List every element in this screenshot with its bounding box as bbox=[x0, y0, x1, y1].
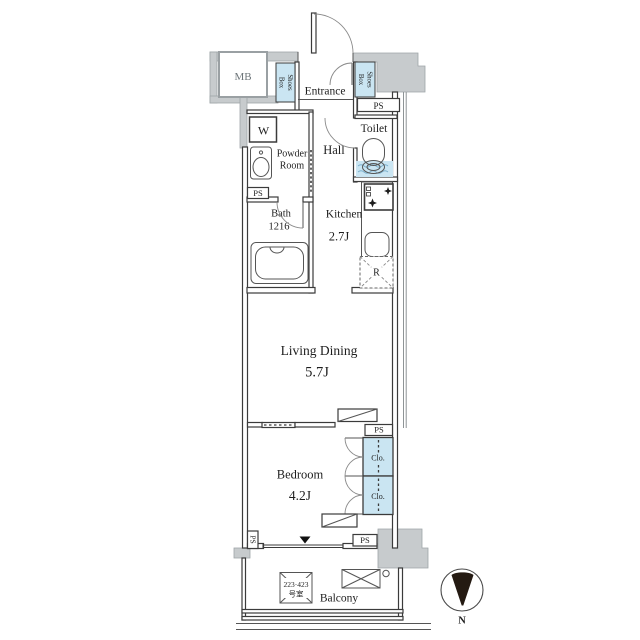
front-door-swing-arc bbox=[314, 14, 353, 53]
bedroom: Bedroom 4.2J Clo. Clo. PS PS bbox=[248, 438, 394, 549]
closet-door-arc1 bbox=[345, 438, 363, 457]
entrance-left-wall bbox=[295, 62, 299, 112]
kitchen-size-label: 2.7J bbox=[329, 230, 350, 244]
bath-size-label: 1216 bbox=[269, 222, 290, 233]
toilet-bottom-wall bbox=[354, 177, 398, 182]
hall: Hall bbox=[323, 118, 355, 157]
compass: N bbox=[441, 569, 483, 627]
washer-label: W bbox=[258, 124, 270, 138]
svg-text:Box: Box bbox=[278, 77, 285, 89]
toilet-label: Toilet bbox=[361, 123, 388, 135]
refrigerator-space: R bbox=[360, 257, 393, 289]
bathtub-inner bbox=[256, 247, 304, 279]
kitchen-label: Kitchen bbox=[326, 209, 363, 221]
unit-left-wall-top bbox=[240, 96, 247, 148]
kitchen: Kitchen 2.7J R bbox=[326, 182, 393, 288]
hall-door-swing-arc bbox=[330, 63, 352, 85]
closet-door-arc2 bbox=[345, 457, 363, 476]
drain-circle bbox=[383, 570, 389, 576]
svg-text:Shoes: Shoes bbox=[366, 71, 373, 88]
room-number-line2: 号室 bbox=[289, 589, 304, 599]
closet-door-arc3 bbox=[345, 476, 363, 495]
bath: Bath 1216 bbox=[251, 202, 308, 284]
refrigerator-label: R bbox=[373, 268, 380, 279]
balcony-rail-bottom2 bbox=[242, 617, 403, 621]
powder-bath-wall-right bbox=[303, 197, 313, 202]
bottomright-wall-block bbox=[378, 529, 428, 568]
closet-bottom-label: Clo. bbox=[371, 492, 385, 501]
pipe-space-vertical-label-group: PS bbox=[249, 535, 258, 543]
partition-wall-mid bbox=[295, 423, 335, 428]
stove bbox=[365, 184, 394, 210]
living-size-label: 5.7J bbox=[305, 365, 329, 381]
floorplan-canvas: MB Shoes Box Shoes Box Entrance Hall PS … bbox=[0, 0, 640, 640]
entrance-label: Entrance bbox=[305, 86, 346, 98]
bathtub-faucet-notch bbox=[270, 247, 284, 253]
living-label: Living Dining bbox=[281, 343, 358, 358]
partition-wall-left bbox=[248, 423, 263, 428]
corridor-left-wall bbox=[210, 52, 217, 103]
powder-room: W Powder Room PS bbox=[248, 117, 312, 199]
left-wall bbox=[243, 147, 248, 548]
toilet-top-wall bbox=[355, 115, 397, 119]
pipe-space-powder-label: PS bbox=[253, 188, 263, 198]
bedroom-label: Bedroom bbox=[277, 468, 324, 482]
closet-top-label: Clo. bbox=[371, 454, 385, 463]
kitchen-living-wall-left bbox=[247, 288, 315, 294]
kitchen-sink bbox=[365, 233, 389, 257]
bath-label: Bath bbox=[271, 209, 292, 220]
balcony: 223·423 号室 Balcony bbox=[236, 558, 431, 630]
pipe-space-partition-label: PS bbox=[374, 425, 384, 435]
compass-north-label: N bbox=[458, 616, 466, 627]
room-number-line1: 223·423 bbox=[284, 580, 309, 589]
bedroom-size-label: 4.2J bbox=[289, 488, 311, 503]
svg-text:Shoes: Shoes bbox=[286, 74, 293, 91]
closet-door-arc4 bbox=[345, 495, 363, 514]
bottomleft-wall-block bbox=[234, 548, 250, 558]
pipe-space-vertical-label: PS bbox=[249, 535, 258, 543]
living-dining: Living Dining 5.7J PS bbox=[281, 343, 393, 436]
powder-room-label1: Powder bbox=[277, 149, 308, 160]
powder-room-label2: Room bbox=[280, 161, 305, 172]
meter-box-label: MB bbox=[234, 71, 251, 83]
pipe-space-top-label: PS bbox=[373, 101, 383, 111]
balcony-rail-bottom1 bbox=[242, 610, 403, 614]
washbasin-tap bbox=[259, 151, 262, 154]
washbasin-bowl bbox=[253, 158, 269, 177]
svg-text:Box: Box bbox=[357, 74, 364, 86]
entry-direction-triangle bbox=[300, 537, 311, 544]
powder-top-wall bbox=[247, 110, 313, 114]
pipe-space-bedroom-label: PS bbox=[360, 535, 370, 545]
front-door-leaf bbox=[312, 13, 317, 53]
balcony-label: Balcony bbox=[320, 593, 359, 605]
